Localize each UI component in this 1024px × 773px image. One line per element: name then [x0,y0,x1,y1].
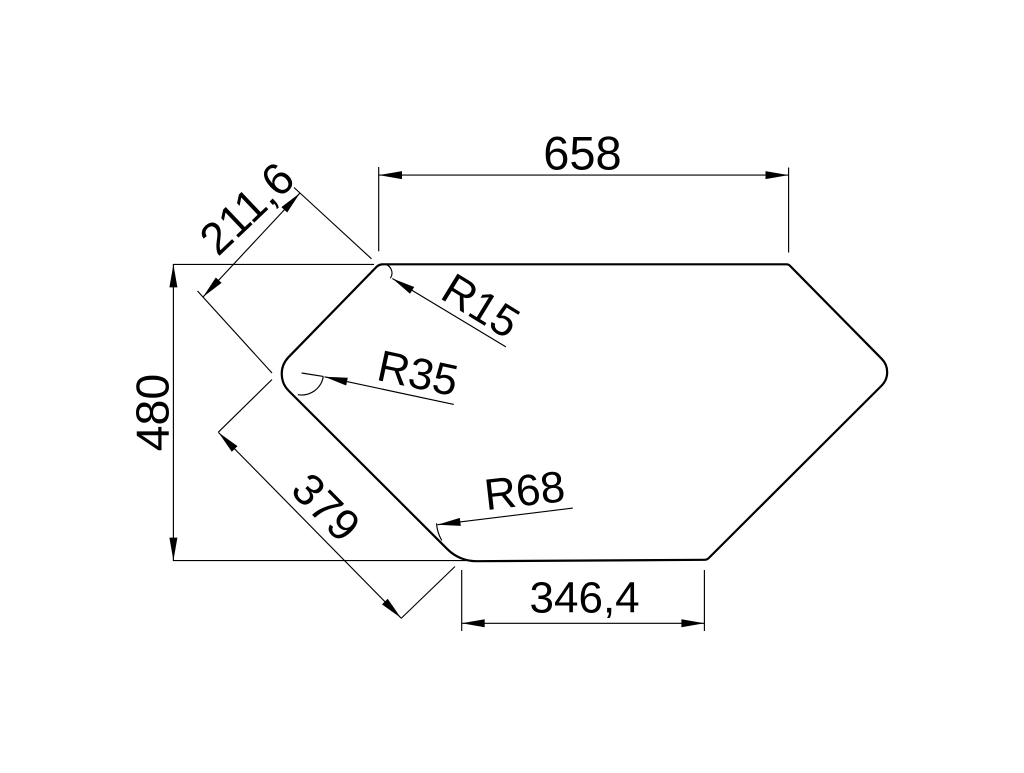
svg-text:379: 379 [282,464,369,551]
svg-text:658: 658 [543,127,621,180]
svg-text:R68: R68 [482,462,568,520]
svg-text:R15: R15 [433,264,527,348]
svg-text:R35: R35 [373,341,462,406]
svg-text:346,4: 346,4 [530,573,640,622]
svg-text:480: 480 [126,374,178,452]
